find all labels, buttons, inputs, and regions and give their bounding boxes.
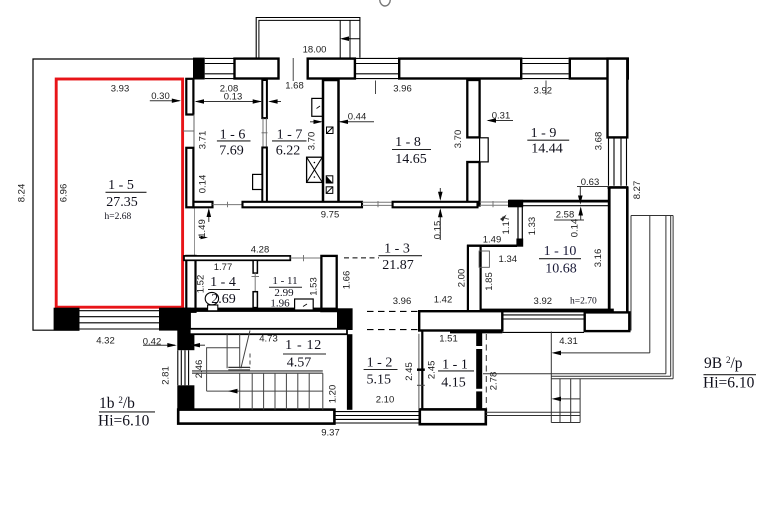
- svg-text:3.70: 3.70: [306, 132, 317, 151]
- svg-text:4.31: 4.31: [559, 336, 578, 347]
- svg-text:4.28: 4.28: [251, 244, 270, 255]
- svg-text:1.52: 1.52: [195, 275, 206, 294]
- svg-text:2.00: 2.00: [456, 269, 467, 288]
- svg-text:1.77: 1.77: [214, 262, 233, 273]
- svg-text:1 - 1: 1 - 1: [442, 357, 468, 372]
- svg-text:1.20: 1.20: [327, 385, 338, 404]
- svg-text:1b 2/b: 1b 2/b: [99, 395, 135, 412]
- svg-text:2.45: 2.45: [404, 362, 415, 381]
- svg-text:10.68: 10.68: [545, 262, 577, 277]
- svg-text:0.15: 0.15: [432, 221, 443, 240]
- svg-text:9.37: 9.37: [321, 427, 340, 438]
- svg-text:14.65: 14.65: [395, 152, 427, 167]
- svg-text:1.17: 1.17: [501, 216, 512, 235]
- svg-text:0.42: 0.42: [143, 337, 162, 348]
- svg-text:4.32: 4.32: [96, 336, 115, 347]
- svg-text:1.49: 1.49: [483, 234, 502, 245]
- svg-text:3.93: 3.93: [111, 84, 130, 95]
- svg-text:2.78: 2.78: [488, 372, 499, 391]
- svg-text:0.30: 0.30: [151, 91, 170, 102]
- svg-text:0.14: 0.14: [569, 219, 580, 238]
- svg-text:1 - 4: 1 - 4: [210, 275, 236, 290]
- svg-text:1 - 2: 1 - 2: [367, 356, 393, 371]
- svg-text:9B 2/p: 9B 2/p: [704, 355, 743, 372]
- svg-text:3.96: 3.96: [393, 84, 412, 95]
- svg-text:14.44: 14.44: [531, 142, 563, 157]
- svg-text:h=2.70: h=2.70: [570, 297, 597, 307]
- svg-text:1 - 12: 1 - 12: [285, 338, 322, 353]
- svg-text:1 - 5: 1 - 5: [108, 178, 134, 193]
- svg-text:Hi=6.10: Hi=6.10: [98, 413, 150, 430]
- svg-text:3.71: 3.71: [197, 131, 208, 150]
- svg-text:3.96: 3.96: [393, 296, 412, 307]
- svg-text:0.44: 0.44: [348, 112, 367, 123]
- svg-text:3.68: 3.68: [593, 132, 604, 151]
- svg-text:Hi=6.10: Hi=6.10: [703, 375, 755, 392]
- svg-text:6.96: 6.96: [58, 184, 69, 203]
- svg-text:3.70: 3.70: [453, 130, 464, 149]
- svg-text:4.57: 4.57: [287, 356, 312, 371]
- svg-text:3.92: 3.92: [534, 296, 553, 307]
- svg-text:0.13: 0.13: [224, 92, 243, 103]
- svg-text:4.15: 4.15: [441, 376, 466, 391]
- svg-text:1.85: 1.85: [484, 272, 495, 291]
- svg-text:1 - 11: 1 - 11: [272, 275, 297, 287]
- svg-text:1 - 10: 1 - 10: [544, 244, 577, 259]
- svg-text:9.75: 9.75: [321, 210, 340, 221]
- svg-text:2.58: 2.58: [556, 209, 575, 220]
- svg-text:8.27: 8.27: [632, 181, 643, 200]
- svg-text:8.24: 8.24: [16, 184, 27, 203]
- svg-text:21.87: 21.87: [382, 258, 414, 273]
- svg-text:1.49: 1.49: [197, 219, 208, 238]
- svg-text:1.53: 1.53: [308, 277, 319, 296]
- svg-text:1 - 9: 1 - 9: [531, 126, 557, 141]
- svg-text:1.66: 1.66: [341, 271, 352, 290]
- svg-text:2.10: 2.10: [376, 394, 395, 405]
- svg-text:1.68: 1.68: [285, 81, 304, 92]
- svg-text:0.14: 0.14: [197, 175, 208, 194]
- svg-text:1.42: 1.42: [434, 294, 453, 305]
- svg-text:h=2.68: h=2.68: [105, 212, 132, 222]
- svg-text:3.16: 3.16: [593, 249, 604, 268]
- svg-text:2.69: 2.69: [211, 292, 236, 307]
- svg-text:6.22: 6.22: [276, 144, 301, 159]
- svg-text:5.15: 5.15: [367, 373, 392, 388]
- svg-text:1 - 8: 1 - 8: [395, 135, 421, 150]
- svg-text:2.45: 2.45: [427, 361, 438, 380]
- svg-text:1.51: 1.51: [439, 334, 458, 345]
- svg-text:1.34: 1.34: [499, 254, 518, 265]
- svg-text:1 - 3: 1 - 3: [384, 242, 410, 257]
- svg-text:4.73: 4.73: [259, 333, 278, 344]
- svg-text:27.35: 27.35: [106, 195, 138, 210]
- svg-text:7.69: 7.69: [219, 144, 244, 159]
- svg-text:3.92: 3.92: [534, 86, 553, 97]
- svg-text:1.96: 1.96: [270, 298, 290, 310]
- svg-text:2.46: 2.46: [194, 360, 205, 379]
- svg-text:0.63: 0.63: [581, 177, 600, 188]
- svg-text:18.00: 18.00: [303, 44, 327, 55]
- svg-text:2.81: 2.81: [160, 366, 171, 385]
- svg-text:1.33: 1.33: [527, 217, 538, 236]
- svg-text:0.31: 0.31: [492, 110, 511, 121]
